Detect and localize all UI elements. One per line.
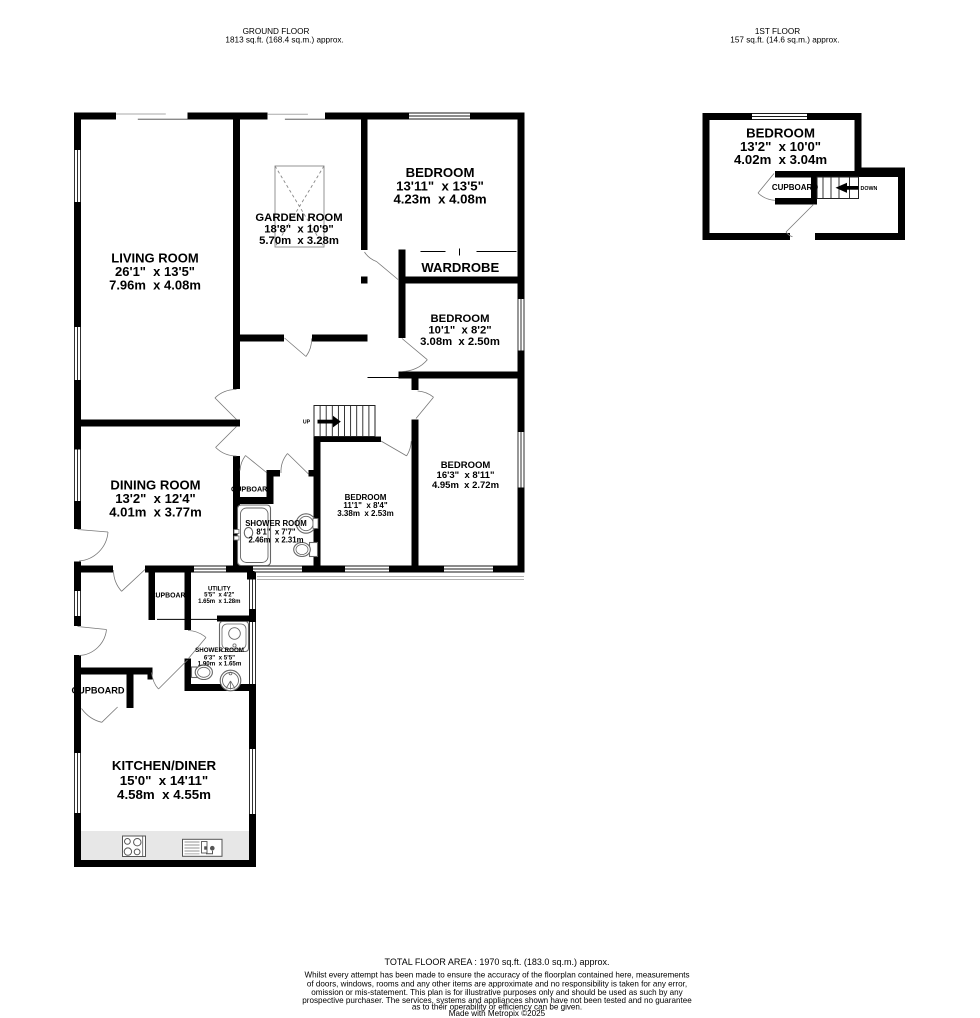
svg-text:TOTAL FLOOR AREA : 1970 sq.ft.: TOTAL FLOOR AREA : 1970 sq.ft. (183.0 sq…: [385, 957, 610, 967]
svg-text:DOWN: DOWN: [861, 186, 878, 192]
svg-text:CUPBOARD: CUPBOARD: [231, 485, 273, 494]
svg-text:3.08m x 2.50m: 3.08m x 2.50m: [420, 336, 500, 348]
svg-text:4.95m x 2.72m: 4.95m x 2.72m: [432, 480, 499, 491]
svg-text:Made with Metropix ©2025: Made with Metropix ©2025: [449, 1009, 546, 1018]
svg-text:5'5" x 4'2": 5'5" x 4'2": [204, 592, 234, 598]
svg-text:157 sq.ft. (14.6 sq.m.) approx: 157 sq.ft. (14.6 sq.m.) approx.: [730, 35, 839, 44]
svg-text:Whilst every attempt has been: Whilst every attempt has been made to en…: [304, 970, 689, 979]
svg-text:1813 sq.ft. (168.4 sq.m.) appr: 1813 sq.ft. (168.4 sq.m.) approx.: [225, 35, 343, 44]
svg-text:10'1" x 8'2": 10'1" x 8'2": [428, 325, 491, 337]
svg-text:4.23m x 4.08m: 4.23m x 4.08m: [393, 192, 486, 207]
svg-text:CUPBOARD: CUPBOARD: [151, 593, 191, 600]
svg-text:1.65m x 1.28m: 1.65m x 1.28m: [198, 599, 240, 605]
svg-text:4.01m x 3.77m: 4.01m x 3.77m: [109, 504, 201, 519]
svg-text:SHOWER ROOM: SHOWER ROOM: [195, 647, 244, 654]
svg-text:BEDROOM: BEDROOM: [431, 313, 490, 325]
svg-text:7.96m x 4.08m: 7.96m x 4.08m: [109, 277, 201, 292]
svg-text:CUPBOARD: CUPBOARD: [71, 685, 124, 695]
svg-text:CUPBOARD: CUPBOARD: [772, 183, 818, 192]
svg-text:5.70m x 3.28m: 5.70m x 3.28m: [259, 235, 339, 247]
svg-text:KITCHEN/DINER: KITCHEN/DINER: [112, 758, 217, 773]
svg-text:UP: UP: [303, 420, 311, 426]
svg-text:WARDROBE: WARDROBE: [421, 260, 499, 275]
svg-text:4.58m x 4.55m: 4.58m x 4.55m: [117, 787, 211, 802]
svg-text:18'8" x 10'9": 18'8" x 10'9": [264, 224, 333, 236]
svg-text:GARDEN ROOM: GARDEN ROOM: [255, 212, 342, 224]
svg-text:3.38m x 2.53m: 3.38m x 2.53m: [337, 509, 393, 518]
svg-text:15'0" x 14'11": 15'0" x 14'11": [120, 773, 208, 788]
svg-text:1.90m x 1.65m: 1.90m x 1.65m: [198, 661, 242, 668]
svg-text:2.46m x 2.31m: 2.46m x 2.31m: [248, 536, 303, 545]
svg-text:4.02m x 3.04m: 4.02m x 3.04m: [734, 152, 827, 167]
